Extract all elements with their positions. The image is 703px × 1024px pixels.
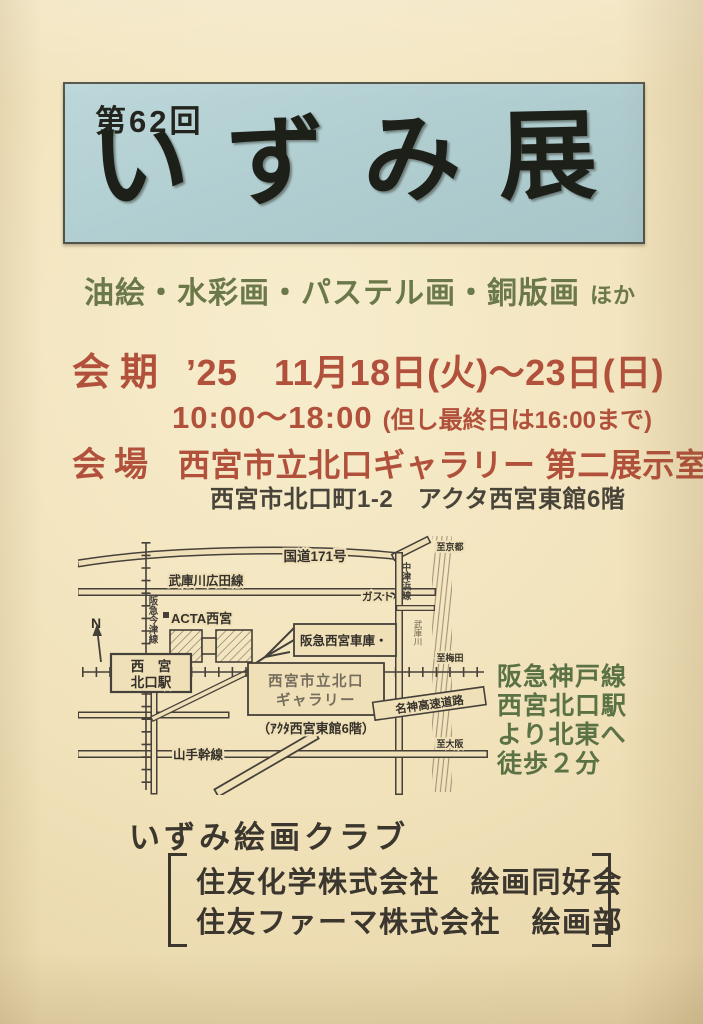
map-label-to-umeda: 至梅田 — [436, 652, 463, 663]
organizer-group: 住友ファーマ株式会社 絵画部 — [196, 899, 623, 941]
access-line: 徒歩２分 — [497, 750, 627, 778]
map-label-to-kyoto: 至京都 — [436, 541, 463, 552]
media-line: 油絵・水彩画・パステル画・銅版画ほか — [84, 268, 636, 312]
gallery-label-line2: ギャラリー — [276, 692, 356, 709]
organizer-club: いずみ絵画クラブ — [129, 812, 409, 857]
hours-note: (但し最終日は16:00まで) — [383, 407, 652, 434]
access-line: より北東へ — [497, 721, 627, 749]
map-label-yamate-line: 山手幹線 — [173, 747, 224, 762]
station-label-line2: 北口駅 — [131, 675, 172, 690]
gallery-floor-note: （ｱｸﾀ西宮東館6階） — [257, 721, 375, 736]
access-line: 阪急神戸線 — [497, 663, 627, 691]
map-label-nakatsuhama-line: 中津浜線 — [400, 561, 412, 601]
map-label-imazu-line: 阪急今津線 — [147, 595, 160, 644]
map-label-hirota-line: 武庫川広田線 — [168, 573, 244, 588]
compass-north: N — [91, 615, 102, 662]
map-label-acta: ACTA西宮 — [171, 611, 232, 626]
map-label-depot: 阪急西宮車庫・ — [300, 633, 388, 648]
schedule-row: 会期’25 11月18日(火)～23日(日) — [72, 341, 664, 396]
map-drawing: 名神高速道路 N 国道171号 武庫川広田線 山手幹線 ガスト ACTA西宮 阪… — [78, 532, 488, 795]
opening-hours: 10:00～18:00 — [172, 400, 373, 435]
hours-row: 10:00～18:00(但し最終日は16:00まで) — [172, 392, 652, 437]
exhibition-flyer: 第62回 いずみ展 油絵・水彩画・パステル画・銅版画ほか 会期’25 11月18… — [0, 0, 703, 1024]
media-types: 油絵・水彩画・パステル画・銅版画 — [84, 277, 580, 310]
meishin-band: 名神高速道路 — [373, 687, 486, 720]
organizer-group: 住友化学株式会社 絵画同好会 — [196, 859, 623, 901]
organizer-groups: 住友化学株式会社 絵画同好会 住友ファーマ株式会社 絵画部 — [168, 853, 608, 943]
right-bracket — [592, 853, 611, 947]
title-banner: 第62回 いずみ展 — [63, 82, 645, 244]
left-bracket — [168, 853, 187, 947]
venue-name: 西宮市立北口ギャラリー 第二展示室 — [178, 447, 703, 483]
gallery-label-line1: 西宮市立北口 — [268, 672, 364, 690]
access-map: 名神高速道路 N 国道171号 武庫川広田線 山手幹線 ガスト ACTA西宮 阪… — [78, 532, 488, 795]
media-suffix: ほか — [590, 283, 636, 308]
access-line: 西宮北口駅 — [497, 692, 627, 720]
schedule-dates: ’25 11月18日(火)～23日(日) — [186, 352, 664, 393]
map-label-gusto: ガスト — [362, 590, 394, 603]
venue-address: 西宮市北口町1-2 アクタ西宮東館6階 — [210, 479, 625, 514]
station-label-line1: 西 宮 — [131, 658, 172, 674]
exhibition-title: いずみ展 — [90, 106, 636, 219]
venue-label: 会場 — [72, 446, 156, 484]
map-label-route171: 国道171号 — [283, 548, 346, 564]
access-info: 阪急神戸線 西宮北口駅 より北東へ 徒歩２分 — [497, 663, 627, 779]
map-label-to-osaka: 至大阪 — [436, 738, 464, 749]
map-label-mukogawa-river: 武庫川 — [413, 619, 423, 645]
schedule-label: 会期 — [72, 352, 168, 394]
